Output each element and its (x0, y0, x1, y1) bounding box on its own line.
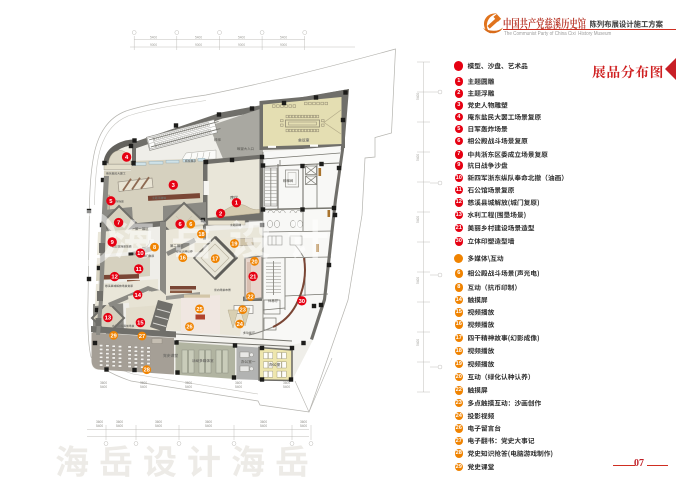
svg-text:8: 8 (153, 245, 156, 251)
svg-text:11: 11 (136, 267, 143, 273)
svg-text:29: 29 (110, 333, 116, 339)
svg-text:21: 21 (250, 274, 257, 280)
svg-text:25: 25 (196, 307, 202, 313)
svg-text:28: 28 (144, 368, 150, 374)
svg-text:23: 23 (240, 308, 246, 314)
svg-text:15: 15 (137, 321, 144, 327)
svg-text:13: 13 (105, 316, 112, 322)
svg-text:30: 30 (299, 299, 305, 305)
svg-text:14: 14 (134, 293, 141, 299)
svg-text:16: 16 (180, 256, 186, 262)
svg-text:22: 22 (247, 295, 253, 301)
svg-text:24: 24 (237, 322, 244, 328)
svg-text:18: 18 (198, 232, 204, 238)
svg-text:27: 27 (139, 334, 145, 340)
svg-text:26: 26 (186, 325, 192, 331)
svg-text:10: 10 (137, 251, 143, 257)
svg-text:2: 2 (219, 211, 222, 217)
svg-text:19: 19 (231, 242, 237, 248)
svg-text:12: 12 (111, 275, 117, 281)
svg-text:7: 7 (117, 221, 120, 227)
svg-text:6: 6 (189, 222, 192, 228)
svg-text:20: 20 (251, 259, 257, 265)
svg-text:17: 17 (212, 257, 218, 263)
